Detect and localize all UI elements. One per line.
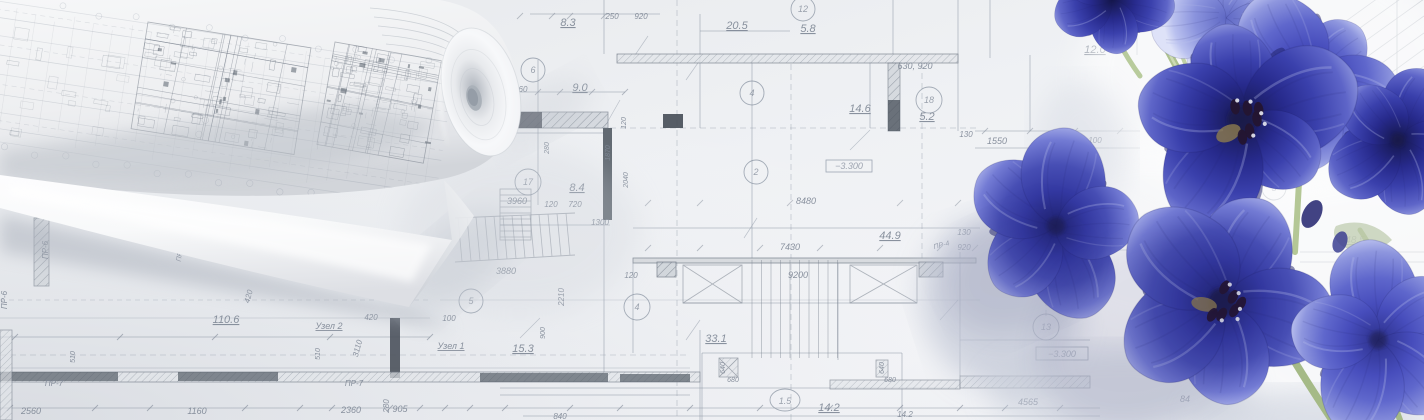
svg-text:280: 280	[382, 399, 391, 414]
svg-text:680: 680	[727, 377, 739, 384]
svg-text:ПР-7: ПР-7	[45, 379, 64, 388]
svg-text:2040: 2040	[623, 172, 630, 189]
svg-text:640: 640	[879, 362, 886, 374]
svg-text:905: 905	[392, 404, 408, 414]
svg-text:840: 840	[553, 412, 567, 420]
svg-text:2: 2	[752, 167, 758, 177]
svg-text:Узел 1: Узел 1	[436, 341, 464, 351]
svg-text:510: 510	[70, 351, 77, 363]
svg-text:ПР-6: ПР-6	[0, 290, 9, 309]
svg-text:18: 18	[924, 95, 934, 105]
svg-text:120: 120	[621, 117, 628, 129]
svg-text:15.3: 15.3	[512, 343, 534, 355]
svg-text:920: 920	[634, 12, 648, 21]
svg-text:14.6: 14.6	[849, 103, 871, 115]
svg-text:900: 900	[540, 327, 547, 339]
svg-text:640: 640	[720, 362, 727, 374]
svg-text:2560: 2560	[20, 406, 41, 416]
svg-text:110.6: 110.6	[213, 314, 241, 326]
svg-text:120: 120	[624, 271, 638, 280]
svg-text:−3.300: −3.300	[835, 161, 863, 171]
svg-text:Узел 2: Узел 2	[314, 321, 342, 331]
svg-text:ПР-7: ПР-7	[345, 379, 364, 388]
svg-text:8.3: 8.3	[560, 17, 576, 29]
svg-text:1550: 1550	[987, 136, 1007, 146]
svg-text:33.1: 33.1	[705, 333, 726, 345]
svg-text:510: 510	[315, 348, 322, 360]
svg-text:2360: 2360	[340, 405, 361, 415]
svg-text:9200: 9200	[788, 270, 808, 280]
svg-text:8480: 8480	[796, 196, 816, 206]
svg-text:20.5: 20.5	[725, 20, 748, 32]
svg-text:250: 250	[604, 12, 619, 21]
svg-text:6: 6	[530, 65, 535, 75]
svg-text:1160: 1160	[187, 406, 206, 416]
svg-text:7430: 7430	[780, 242, 800, 252]
svg-text:14.2: 14.2	[818, 402, 839, 414]
svg-text:100: 100	[442, 314, 456, 323]
svg-text:4: 4	[749, 88, 754, 98]
svg-text:44.9: 44.9	[879, 230, 900, 242]
svg-text:14.2: 14.2	[897, 410, 913, 419]
svg-text:5.2: 5.2	[919, 111, 934, 123]
svg-text:4: 4	[634, 302, 639, 312]
svg-text:1870: 1870	[605, 145, 612, 161]
svg-text:680: 680	[884, 377, 896, 384]
svg-text:5.8: 5.8	[800, 23, 816, 35]
svg-text:1.5: 1.5	[779, 396, 793, 406]
svg-text:12: 12	[798, 4, 808, 14]
svg-text:630, 920: 630, 920	[897, 61, 932, 71]
svg-text:130: 130	[959, 130, 973, 139]
